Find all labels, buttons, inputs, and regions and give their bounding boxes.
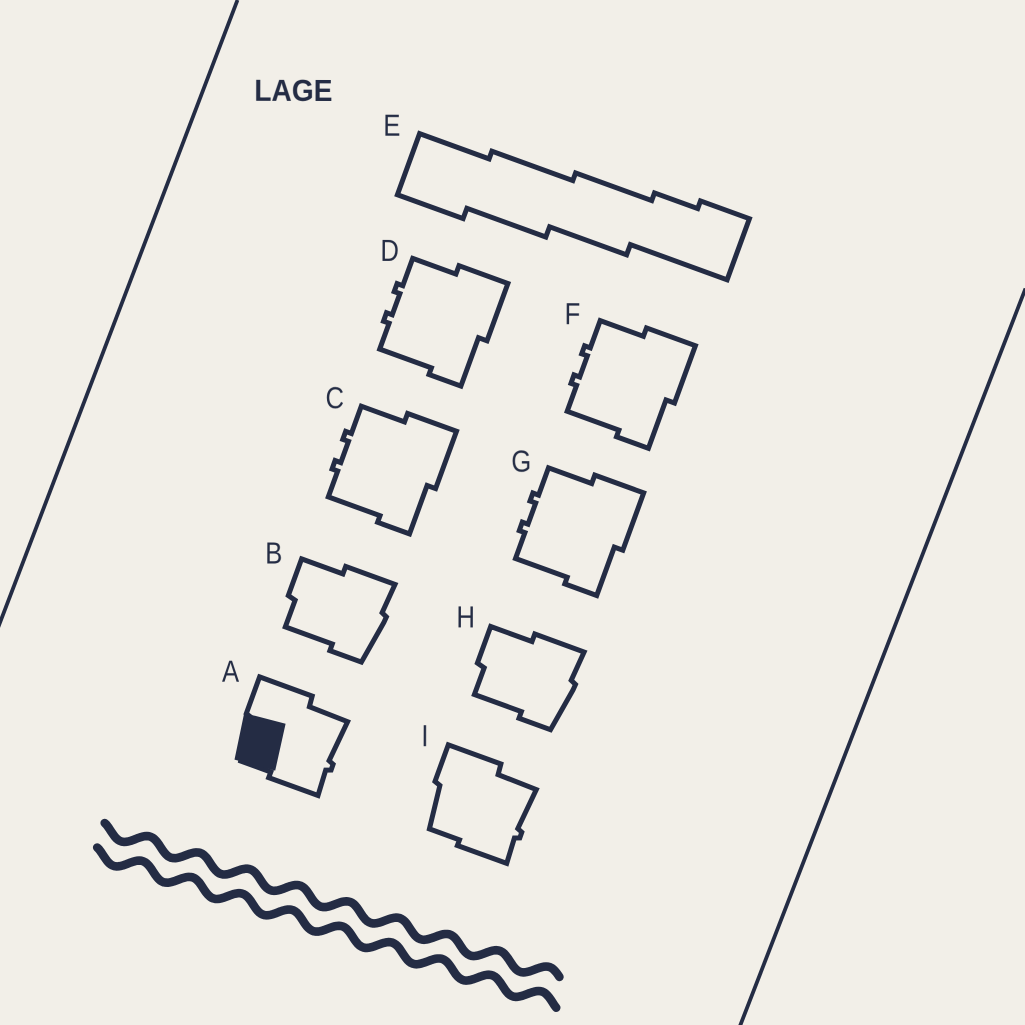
svg-text:I: I [421,719,428,753]
svg-text:LAGE: LAGE [254,74,332,108]
svg-text:H: H [456,600,475,634]
svg-text:A: A [222,655,239,689]
svg-text:B: B [265,536,282,570]
svg-text:D: D [380,234,399,268]
svg-text:E: E [383,109,400,143]
svg-text:G: G [511,445,531,479]
svg-text:F: F [565,297,581,331]
svg-text:C: C [325,381,344,415]
